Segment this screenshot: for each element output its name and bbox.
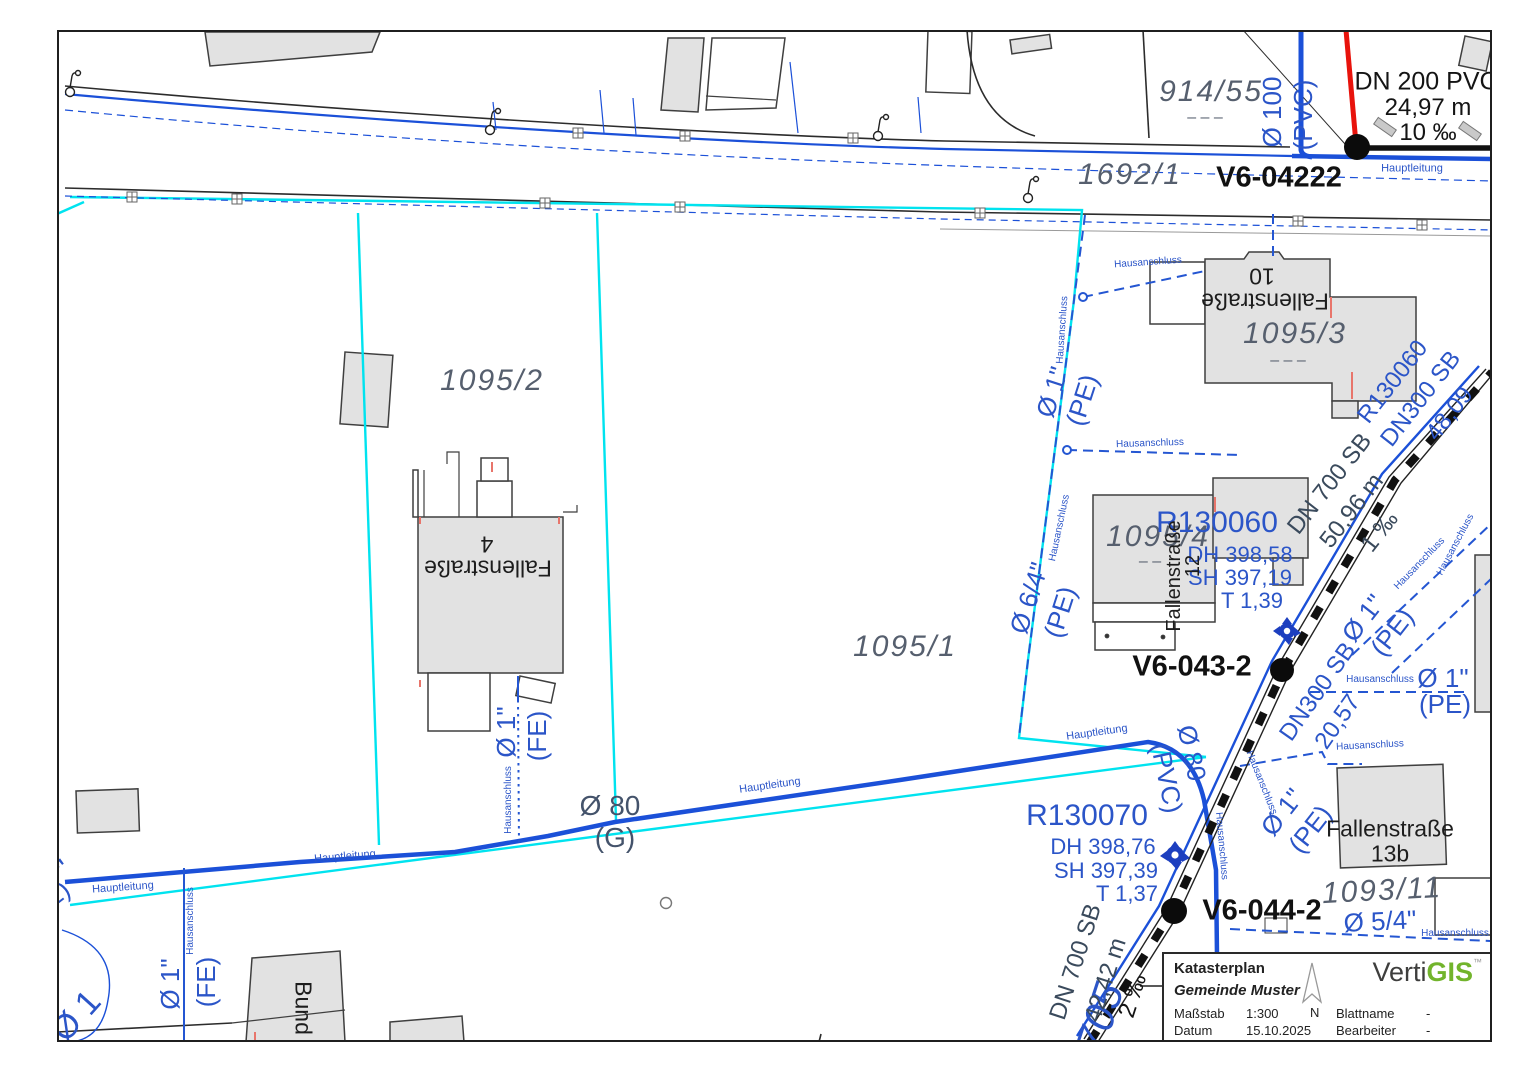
- north-label: N: [1310, 1006, 1319, 1019]
- vertigis-logo-gis: GIS: [1426, 957, 1473, 987]
- legend-sheet-value: -: [1426, 1007, 1430, 1020]
- water-valve-symbols: [1160, 617, 1301, 870]
- map-drawing: [57, 30, 1492, 1042]
- map-canvas: 914/55– – –1692/11095/21095/11095/3– – –…: [57, 30, 1492, 1042]
- buildings-layer: [76, 30, 1492, 1042]
- legend-title: Katasterplan: [1174, 961, 1265, 976]
- legend-date-value: 15.10.2025: [1246, 1024, 1311, 1037]
- north-arrow-icon: [1297, 960, 1327, 1006]
- legend-box: Katasterplan Gemeinde Muster Maßstab 1:3…: [1162, 952, 1492, 1042]
- road-shoulder-line: [940, 229, 1492, 236]
- legend-editor-label: Bearbeiter: [1336, 1024, 1396, 1037]
- vertigis-logo: VertiGIS™: [1372, 958, 1482, 988]
- legend-editor-value: -: [1426, 1024, 1430, 1037]
- katasterplan-page: 914/55– – –1692/11095/21095/11095/3– – –…: [0, 0, 1537, 1080]
- parcel-boundary-cyan: [57, 197, 1206, 905]
- vertigis-logo-tm: ™: [1473, 957, 1482, 967]
- legend-date-label: Datum: [1174, 1024, 1212, 1037]
- building-details: [232, 96, 1165, 1023]
- legend-scale-label: Maßstab: [1174, 1007, 1225, 1020]
- legend-municipality: Gemeinde Muster: [1174, 983, 1300, 998]
- culvert-symbols: [1374, 117, 1482, 140]
- legend-scale-value: 1:300: [1246, 1007, 1279, 1020]
- vertigis-logo-verti: Verti: [1372, 957, 1426, 987]
- map-area: 914/55– – –1692/11095/21095/11095/3– – –…: [57, 30, 1492, 1042]
- legend-sheet-label: Blattname: [1336, 1007, 1395, 1020]
